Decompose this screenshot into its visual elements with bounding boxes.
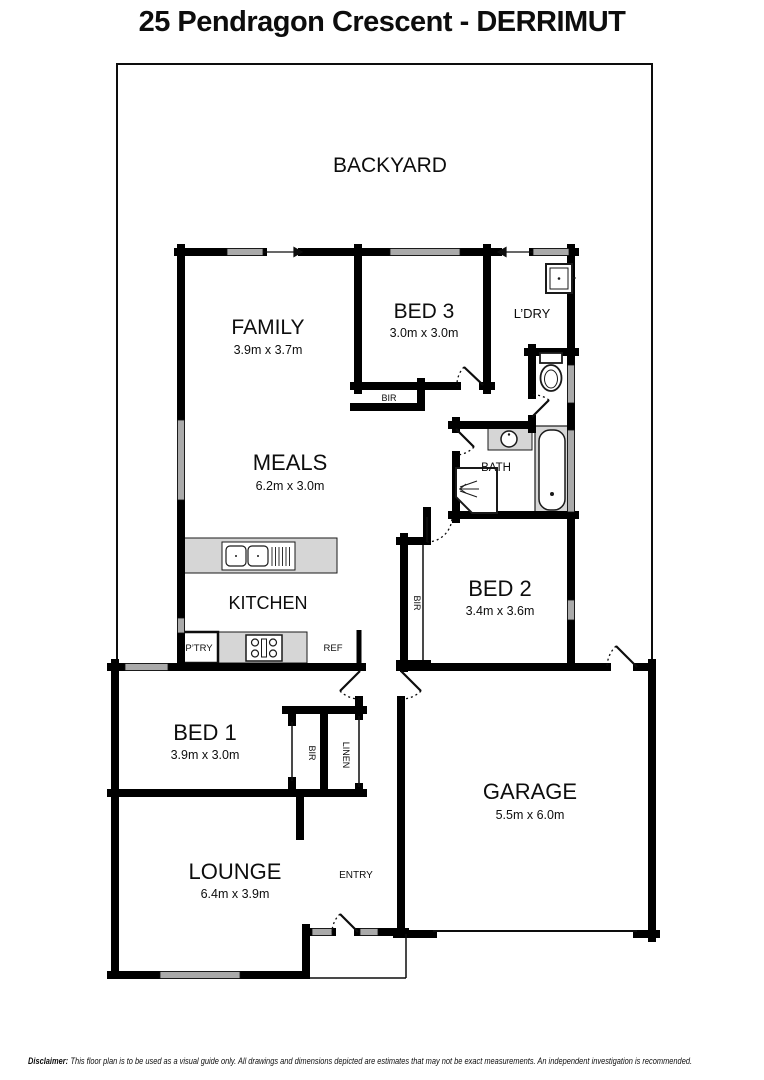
dims-meals: 6.2m x 3.0m: [256, 479, 325, 493]
label-lounge: LOUNGE: [189, 859, 282, 884]
room-labels: BACKYARD FAMILY 3.9m x 3.7m BED 3 3.0m x…: [171, 154, 577, 901]
label-bir-bed2: BIR: [412, 595, 422, 611]
label-bed3: BED 3: [394, 300, 455, 323]
label-meals: MEALS: [253, 450, 328, 475]
floor-plan-drawing: BACKYARD FAMILY 3.9m x 3.7m BED 3 3.0m x…: [0, 0, 764, 1080]
cooktop: [246, 635, 282, 661]
label-entry: ENTRY: [339, 870, 373, 881]
toilet: [540, 353, 562, 391]
laundry-tub: [546, 264, 576, 293]
label-family: FAMILY: [231, 316, 304, 339]
floor-plan-page: 25 Pendragon Crescent - DERRIMUT: [0, 0, 764, 1080]
disclaimer: Disclaimer:This floor plan is to be used…: [28, 1056, 748, 1066]
label-bed1: BED 1: [173, 720, 237, 745]
disclaimer-text: This floor plan is to be used as a visua…: [71, 1056, 693, 1066]
label-linen: LINEN: [341, 742, 351, 769]
label-backyard: BACKYARD: [333, 154, 447, 177]
shower: [456, 468, 497, 513]
dims-garage: 5.5m x 6.0m: [496, 808, 565, 822]
kitchen-sink: [222, 542, 295, 570]
door-leaves: [340, 367, 637, 932]
slider-arrow-family: [263, 248, 302, 257]
label-garage: GARAGE: [483, 779, 577, 804]
disclaimer-prefix: Disclaimer:: [28, 1056, 68, 1066]
label-fridge: REF: [324, 643, 343, 654]
dims-bed2: 3.4m x 3.6m: [466, 604, 535, 618]
label-pantry: P’TRY: [185, 643, 213, 654]
dims-bed3: 3.0m x 3.0m: [390, 326, 459, 340]
bath-vanity: [488, 428, 532, 450]
label-kitchen: KITCHEN: [228, 593, 307, 613]
slider-arrow-laundry: [498, 248, 533, 257]
dims-lounge: 6.4m x 3.9m: [201, 887, 270, 901]
bathtub: [535, 426, 569, 514]
label-bed2: BED 2: [468, 576, 532, 601]
label-laundry: L’DRY: [514, 306, 551, 321]
porch-outline: [310, 934, 406, 978]
label-bath: BATH: [481, 462, 511, 474]
label-bir-bed1: BIR: [307, 745, 317, 761]
dims-bed1: 3.9m x 3.0m: [171, 748, 240, 762]
label-bir-bed3: BIR: [381, 393, 397, 403]
dims-family: 3.9m x 3.7m: [234, 343, 303, 357]
